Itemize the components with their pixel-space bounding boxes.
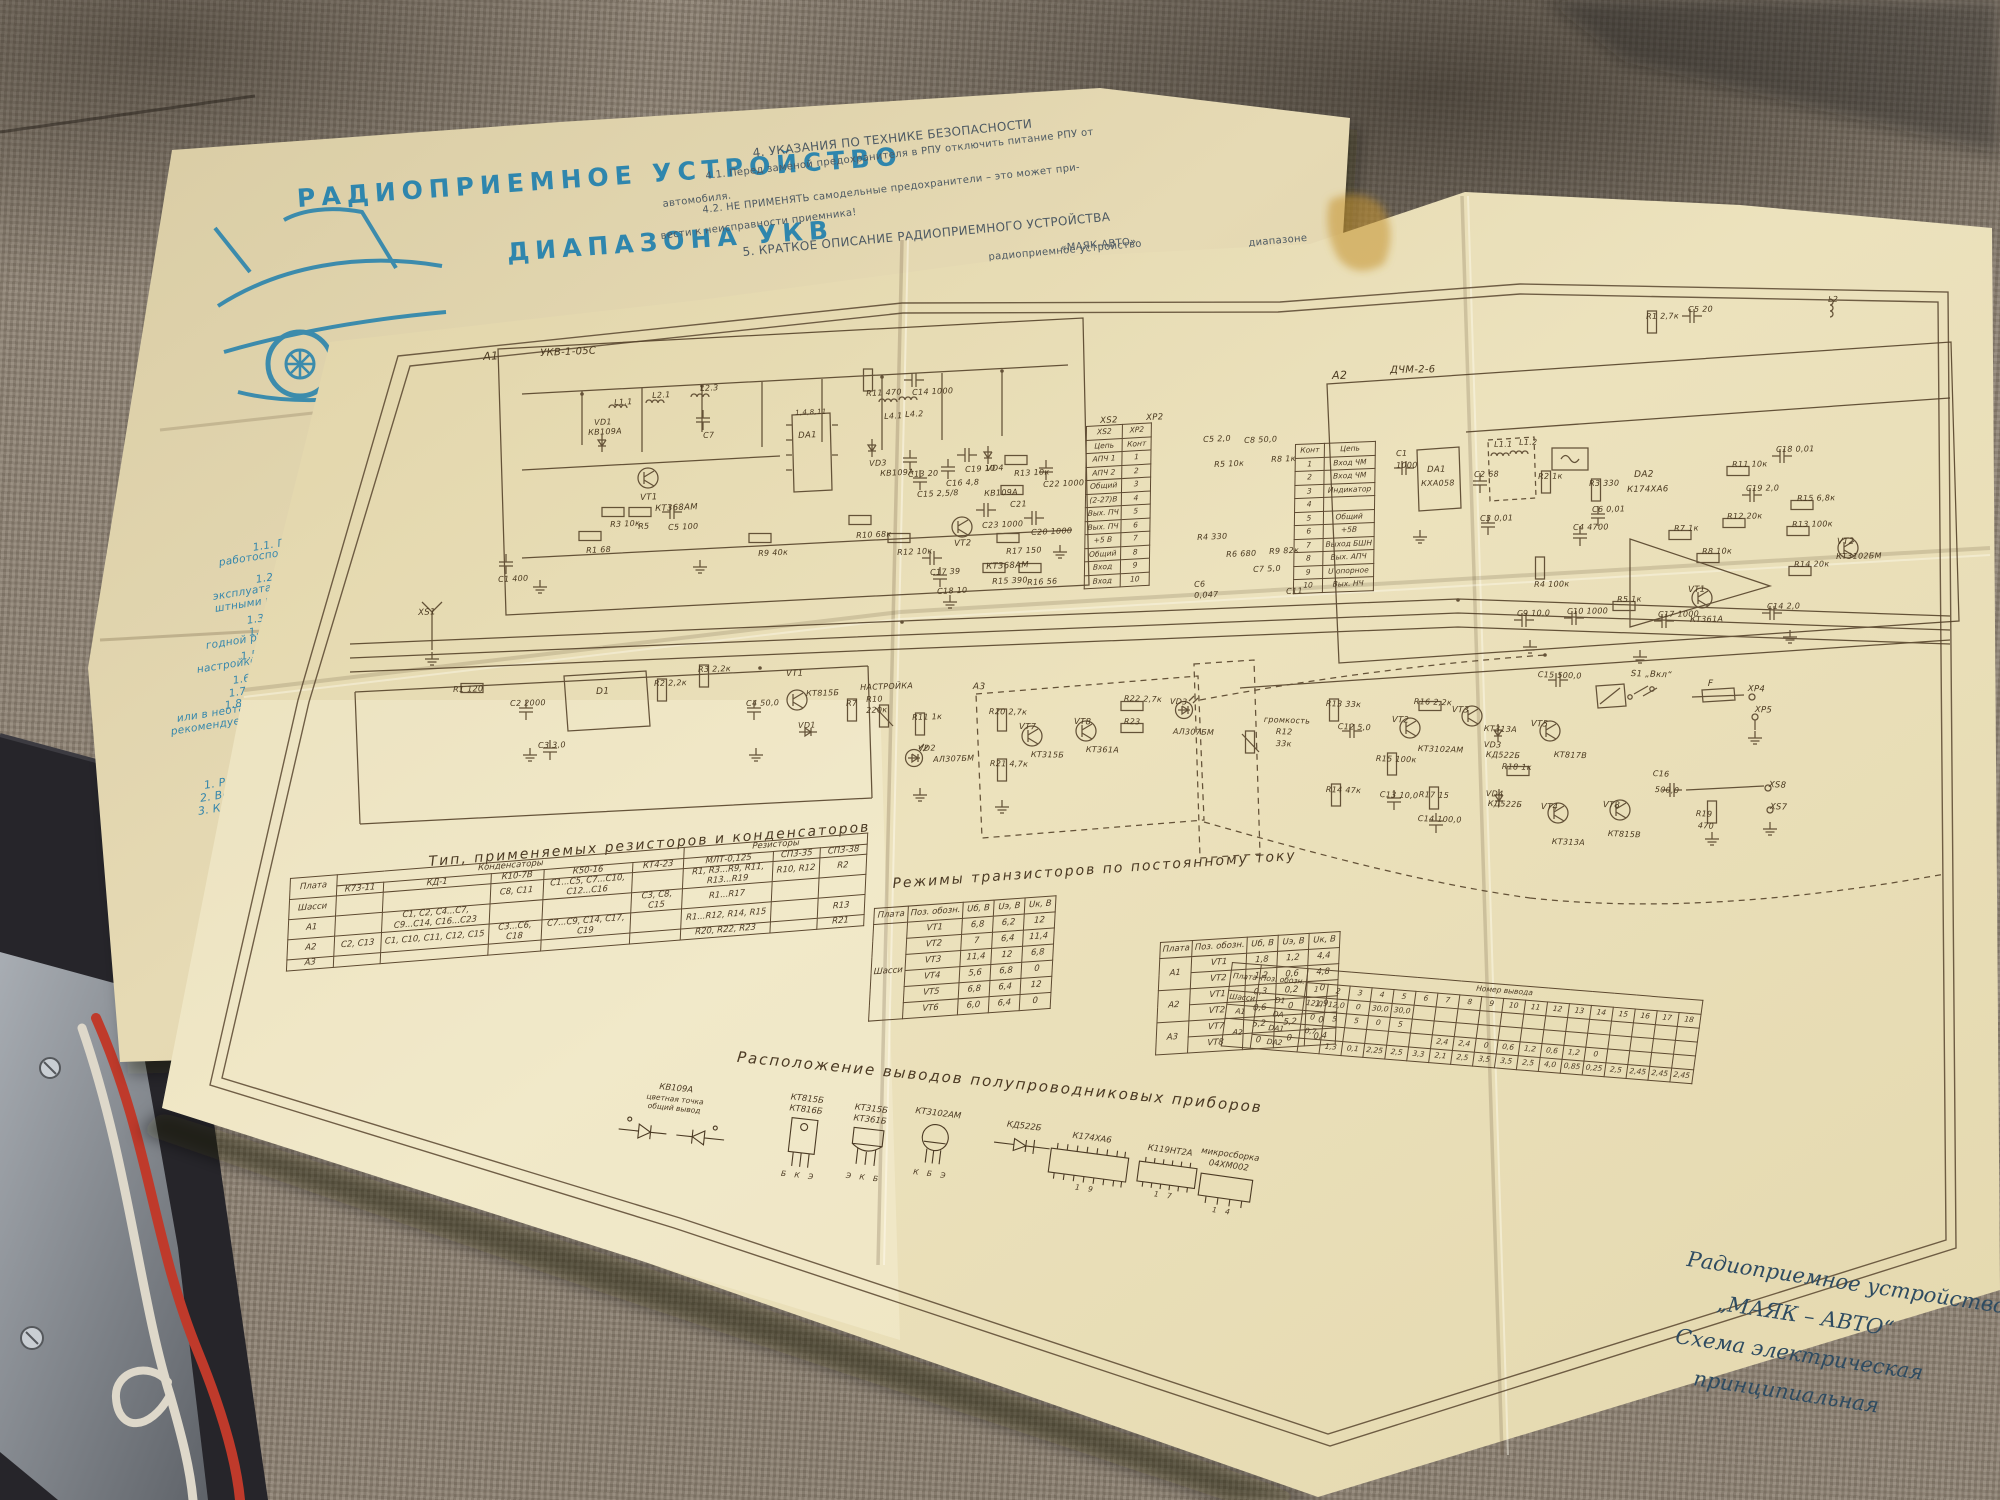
schematic-label: C7	[703, 431, 715, 440]
schematic-label: C18 10	[937, 586, 968, 596]
schematic-label: 0,047	[1194, 590, 1219, 600]
schematic-label: VD1	[798, 721, 816, 730]
schematic-label: C17 1000	[1658, 609, 1699, 619]
schematic-label: R20 2,7к	[989, 707, 1027, 717]
schematic-label: L2.1	[652, 390, 671, 400]
schematic-label: C18 0,01	[1776, 444, 1815, 454]
legend-varicap: КВ109А цветная точка общий вывод	[615, 1078, 731, 1154]
schematic-label: КВ109А	[588, 427, 622, 437]
schematic-label: R1 68	[586, 545, 611, 555]
schematic-label: C5 20	[1688, 305, 1713, 314]
table-cell: Плата	[1229, 963, 1261, 993]
schematic-label: VD3	[1170, 697, 1188, 706]
schematic-label: C4 4700	[1573, 522, 1609, 532]
schematic-label: DA1	[1427, 465, 1446, 475]
table-row: 10Вых. НЧ	[1293, 577, 1374, 594]
schematic-label: R7 1к	[1674, 524, 1699, 533]
schematic-label: R21 4,7к	[990, 759, 1028, 769]
schematic-label: R6 680	[1226, 549, 1257, 559]
schematic-label: VD4	[1486, 789, 1504, 799]
legend-kd522: КД522Б	[991, 1118, 1055, 1160]
schematic-label: 1,4,8,11	[795, 408, 827, 417]
schematic-label: НАСТРОЙКА	[860, 681, 913, 692]
schematic-label: C23 1000	[982, 519, 1023, 530]
schematic-label: КТ368АМ	[655, 502, 698, 514]
schematic-label: КД522Б	[1488, 799, 1523, 809]
schematic-label: 1000	[1396, 461, 1418, 470]
schematic-label: R3 330	[1589, 478, 1619, 488]
schematic-label: VT2	[954, 538, 972, 549]
schematic-label: АЛ307БМ	[1173, 727, 1214, 737]
schematic-label: DA2	[1634, 470, 1654, 480]
schematic-label: R17 150	[1006, 545, 1042, 556]
schematic-label: C6 0,01	[1592, 504, 1625, 514]
table-cell: DA2	[1250, 1034, 1299, 1052]
table-cell: 0,25	[1582, 1061, 1606, 1077]
schematic-label: КТ313А	[1552, 837, 1585, 847]
schematic-label: R12	[1276, 727, 1293, 737]
schematic-label: C3 3,0	[538, 740, 566, 750]
schematic-label: КВ109А	[984, 488, 1018, 498]
schematic-label: S1 „Вкл“	[1631, 669, 1672, 680]
table-cell: 2,5	[1604, 1063, 1628, 1079]
annotation-layer: А1УКВ-1-05СL1.1L2.1L2.3VD1КВ109АVT1КТ368…	[0, 0, 2000, 1500]
table-cell: 6	[1294, 524, 1323, 539]
schematic-label: C15 500,0	[1538, 670, 1582, 681]
schematic-label: VT1	[786, 669, 804, 679]
schematic-label: C1 400	[498, 574, 529, 584]
table-cell: 3,3	[1407, 1047, 1431, 1063]
legend-microassembly: микросборка 04ХМ002 1 4	[1193, 1146, 1260, 1220]
table-cell	[1297, 1038, 1321, 1054]
schematic-label: R8 1к	[1271, 454, 1296, 464]
table-cell: 4,0	[1538, 1058, 1562, 1074]
schematic-label: C16 4,8	[946, 478, 980, 488]
power-transistor-package-icon	[779, 1115, 825, 1173]
table-cell: 2,5	[1516, 1056, 1540, 1072]
schematic-label: R7	[846, 699, 857, 708]
table-cell: 1	[1295, 457, 1324, 472]
table-cell: 2,45	[1648, 1066, 1672, 1082]
schematic-label: КТ815В	[1608, 829, 1641, 839]
schematic-label: L4.1	[884, 411, 903, 421]
table-cell: Конт	[1295, 443, 1324, 458]
schematic-label: VT1	[640, 492, 658, 503]
schematic-label: R11 10к	[1732, 459, 1768, 469]
schematic-label: КД522Б	[1486, 750, 1521, 760]
schematic-label: R12 20к	[1727, 511, 1763, 521]
schematic-label: R17 15	[1419, 790, 1450, 800]
schematic-label: C8 50,0	[1244, 435, 1278, 445]
table-cell: 2,45	[1670, 1068, 1694, 1084]
schematic-label: R10 68к	[856, 529, 892, 540]
schematic-label: R18 1к	[1502, 762, 1532, 772]
schematic-label: ХS7	[1770, 802, 1788, 813]
table-cell: 2,5	[1450, 1050, 1474, 1066]
schematic-label: КХА058	[1421, 478, 1455, 488]
table-cell: 3	[1295, 484, 1324, 499]
schematic-label: VT1	[1688, 585, 1706, 595]
schematic-label: VD2	[918, 743, 936, 753]
connector-table: КонтЦепь1Вход ЧМ2Вход ЧМ3Индикатор45Общи…	[1293, 441, 1376, 594]
schematic-label: C19 2,0	[1746, 483, 1779, 493]
schematic-label: R11 1к	[912, 712, 942, 722]
schematic-label: R9 40к	[758, 548, 788, 558]
table-cell: Uэ, В	[1278, 933, 1310, 951]
schematic-label: C12 5,0	[1338, 722, 1371, 732]
table-cell: А2	[1157, 989, 1191, 1023]
schematic-label: VT8	[1603, 800, 1621, 811]
schematic-label: R13 10к	[1014, 467, 1050, 478]
schematic-label: C14 2,0	[1767, 601, 1800, 611]
schematic-label: ДЧМ-2-6	[1390, 364, 1436, 376]
schematic-label: C13 20	[908, 469, 939, 479]
schematic-label: R1 2,7к	[1646, 311, 1679, 321]
table-cell: 2,5	[1385, 1045, 1409, 1061]
schematic-label: VT5	[1531, 719, 1549, 730]
schematic-label: C14 1000	[912, 386, 953, 397]
schematic-label: C9 10,0	[1517, 608, 1550, 618]
table-cell: 0,1	[1341, 1042, 1365, 1058]
table-cell: 10	[1120, 572, 1149, 587]
schematic-label: 500,0	[1655, 785, 1680, 795]
table-cell: 0,85	[1560, 1059, 1584, 1075]
schematic-label: громкость	[1264, 715, 1311, 726]
schematic-label: АЛ307БМ	[933, 754, 975, 764]
schematic-label: C21	[1010, 499, 1027, 509]
table-cell: 6,4	[988, 995, 1020, 1013]
schematic-label: L2	[1828, 295, 1838, 304]
schematic-label: VT2	[1837, 537, 1855, 547]
schematic-label: C4 50,0	[746, 698, 779, 708]
schematic-label: R15 6,8к	[1797, 493, 1835, 503]
schematic-label: R10	[866, 694, 883, 704]
schematic-label: R15 100к	[1376, 754, 1417, 764]
table-cell: Uб, В	[1247, 935, 1279, 953]
schematic-label: VD1	[594, 417, 612, 427]
schematic-label: L1.1	[614, 397, 633, 407]
schematic-label: R3 10к	[610, 519, 640, 529]
schematic-label: C2 68	[1474, 470, 1499, 479]
schematic-label: R16 2,2к	[1414, 697, 1453, 707]
table-cell: 2,45	[1626, 1065, 1650, 1081]
schematic-label: C10 1000	[1567, 606, 1608, 616]
schematic-label: ХS1	[418, 607, 436, 618]
table-cell: 0	[1019, 992, 1051, 1010]
table-cell: 7	[1294, 538, 1323, 553]
schematic-label: C1	[1396, 449, 1407, 458]
schematic-label: VT2	[1392, 715, 1410, 726]
schematic-label: C13 10,0	[1380, 790, 1419, 800]
schematic-label: КТ313А	[1484, 724, 1517, 734]
table-cell: Шасси	[869, 922, 908, 1021]
schematic-label: L1.1	[1494, 440, 1513, 449]
table-cell: 2	[1295, 470, 1324, 485]
schematic-label: А1	[483, 349, 499, 363]
table-cell: Вых. НЧ	[1322, 577, 1374, 592]
table-cell: 4	[1295, 497, 1324, 512]
schematic-label: C15 2,5/8	[917, 488, 959, 499]
schematic-label: КТ815Б	[806, 688, 839, 698]
schematic-label: R4 330	[1197, 532, 1228, 542]
schematic-label: C5 100	[668, 522, 699, 532]
schematic-label: R5	[638, 522, 650, 531]
legend-kt3102: КТ3102АМ К Б Э	[908, 1106, 962, 1181]
schematic-label: КТ368АМ	[986, 560, 1029, 572]
schematic-label: ХS8	[1769, 780, 1787, 791]
schematic-label: ХР4	[1748, 684, 1766, 695]
schematic-label: R19	[1696, 809, 1713, 819]
schematic-label: C14 100,0	[1418, 814, 1462, 825]
schematic-label: А2	[1332, 369, 1347, 382]
schematic-label: R22 2,7к	[1124, 694, 1162, 704]
schematic-label: VT4	[1541, 802, 1559, 813]
transistor-modes-table-chassis: ПлатаПоз. обозн.Uб, ВUэ, ВUк, ВШассиVT16…	[868, 895, 1057, 1021]
schematic-label: КТ3102АМ	[1418, 744, 1464, 755]
schematic-label: А3	[973, 682, 986, 692]
table-cell: 1,3	[1319, 1040, 1343, 1056]
schematic-label: R8 10к	[1702, 546, 1732, 556]
schematic-label: VT3	[1452, 705, 1470, 716]
table-cell: 3,5	[1494, 1054, 1518, 1070]
schematic-label: КТ817В	[1554, 750, 1587, 760]
table-cell: А2	[1221, 1018, 1253, 1048]
schematic-label: КТ315Б	[1031, 750, 1064, 760]
schematic-label: R14 47к	[1326, 785, 1362, 795]
table-cell: А3	[1156, 1021, 1190, 1055]
connector-table-a2: КонтЦепь1Вход ЧМ2Вход ЧМ3Индикатор45Общи…	[1293, 441, 1376, 594]
table-cell: 2,25	[1363, 1043, 1387, 1059]
schematic-label: C7 5,0	[1253, 564, 1281, 574]
schematic-label: R5 10к	[1214, 459, 1244, 469]
schematic-label: R13 33к	[1326, 699, 1362, 709]
legend-k119nt2a: К119НТ2А 1 7	[1133, 1142, 1201, 1203]
schematic-label: C22 1000	[1043, 478, 1084, 489]
schematic-label: C16	[1653, 769, 1670, 779]
schematic-label: R11 470	[866, 387, 902, 398]
schematic-label: УКВ-1-05С	[540, 346, 596, 359]
table-cell: 9	[1294, 565, 1323, 580]
schematic-label: R14 20к	[1794, 559, 1830, 569]
schematic-label: VT7	[1019, 722, 1036, 732]
schematic-label: L2.3	[700, 383, 719, 393]
schematic-label: R4 100к	[1534, 579, 1570, 589]
schematic-label: R12 10к	[897, 546, 933, 557]
schematic-label: R23	[1124, 717, 1141, 726]
table-cell: Вход	[1084, 573, 1120, 589]
table-cell: А1	[1158, 957, 1192, 991]
schematic-label: L1.2	[1519, 438, 1538, 447]
schematic-label: C20 1000	[1031, 526, 1072, 537]
flat-transistor-package-icon	[844, 1125, 889, 1175]
schematic-label: F	[1708, 679, 1714, 689]
schematic-label: D1	[596, 687, 610, 697]
schematic-label: C17 39	[930, 567, 961, 577]
table-cell: 6,0	[957, 997, 989, 1015]
schematic-label: 220к	[866, 705, 888, 715]
transistor-modes-grid: ПлатаПоз. обозн.Uб, ВUэ, ВUк, ВШассиVT16…	[868, 895, 1057, 1021]
schematic-label: R1 120	[453, 684, 483, 694]
schematic-label: R2 1к	[1538, 472, 1563, 481]
connector-table-xs2-xp2: ХS2ХР2ЦепьКонтАПЧ 11АПЧ 22Общий3(2-27)В4…	[1084, 422, 1152, 589]
table-cell: 10	[1293, 579, 1322, 594]
schematic-label: L4.2	[905, 409, 924, 419]
schematic-label: C3 0,01	[1480, 513, 1513, 523]
legend-k174xa6: К174ХА6 1 9	[1044, 1128, 1133, 1198]
schematic-label: DA1	[798, 430, 817, 441]
round-transistor-package-icon	[912, 1119, 958, 1172]
table-cell: 8	[1294, 552, 1323, 567]
photo-of-schematic-document: РАДИОПРИЕМНОЕ УСТРОЙСТВОДИАПАЗОНА УКВ4. …	[0, 0, 2000, 1500]
schematic-label: 33к	[1276, 739, 1292, 749]
schematic-label: R2 2,2к	[654, 678, 687, 688]
schematic-label: VD4	[986, 463, 1004, 473]
schematic-label: ХР5	[1755, 705, 1773, 716]
schematic-label: C2 2000	[510, 698, 546, 708]
schematic-label: К174ХА6	[1627, 484, 1669, 495]
table-cell: 5	[1294, 511, 1323, 526]
schematic-label: C6	[1194, 580, 1206, 589]
table-cell: 3,5	[1472, 1052, 1496, 1068]
schematic-label: R16 56	[1027, 577, 1058, 587]
schematic-label: КТ3102БМ	[1836, 551, 1882, 561]
schematic-label: 470	[1698, 821, 1715, 831]
schematic-label: VD3	[869, 458, 887, 468]
schematic-label: КТ361А	[1086, 745, 1119, 755]
connector-table: ХS2ХР2ЦепьКонтАПЧ 11АПЧ 22Общий3(2-27)В4…	[1084, 422, 1152, 589]
schematic-label: R3 2,2к	[698, 664, 731, 674]
schematic-label: R15 390	[992, 575, 1028, 586]
schematic-label: ХР2	[1146, 412, 1164, 423]
schematic-label: R13 100к	[1792, 519, 1833, 529]
table-cell: 2,1	[1428, 1049, 1452, 1065]
table-cell: Поз. обозн.	[1257, 965, 1308, 997]
schematic-label: C5 2,0	[1203, 434, 1231, 444]
table-cell: VT6	[903, 999, 959, 1019]
schematic-label: R5 1к	[1617, 595, 1642, 604]
schematic-label: VT8	[1074, 717, 1092, 727]
schematic-label: VD3	[1484, 740, 1502, 750]
